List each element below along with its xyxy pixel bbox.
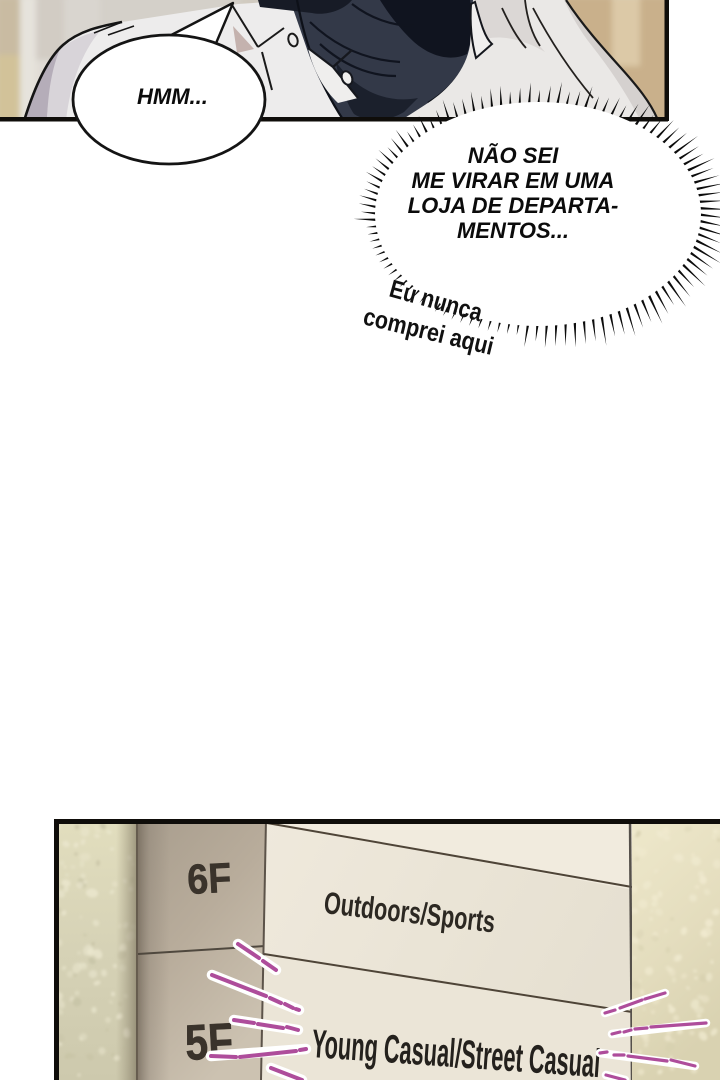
svg-text:HMM...: HMM... xyxy=(137,84,208,109)
svg-text:LOJA DE DEPARTA-: LOJA DE DEPARTA- xyxy=(408,193,619,218)
svg-text:NÃO SEI: NÃO SEI xyxy=(468,143,559,168)
svg-text:MENTOS...: MENTOS... xyxy=(457,218,569,243)
svg-text:5F: 5F xyxy=(184,1013,235,1071)
svg-text:6F: 6F xyxy=(186,854,232,903)
svg-text:ME VIRAR EM UMA: ME VIRAR EM UMA xyxy=(412,168,615,193)
